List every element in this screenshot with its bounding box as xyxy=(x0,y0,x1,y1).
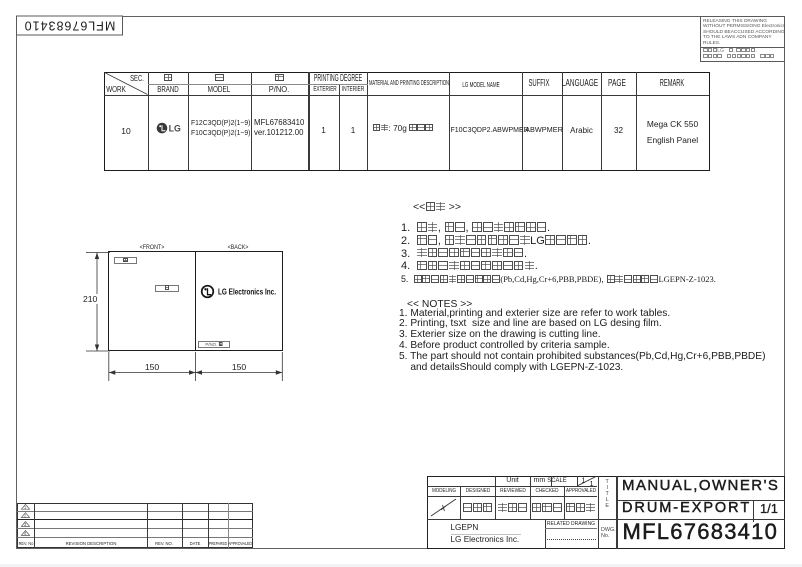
svg-text:1: 1 xyxy=(582,477,586,484)
svg-text:LG: LG xyxy=(169,124,181,134)
svg-text:1: 1 xyxy=(590,480,594,485)
svg-text:LG Electronics Inc.: LG Electronics Inc. xyxy=(218,286,276,296)
